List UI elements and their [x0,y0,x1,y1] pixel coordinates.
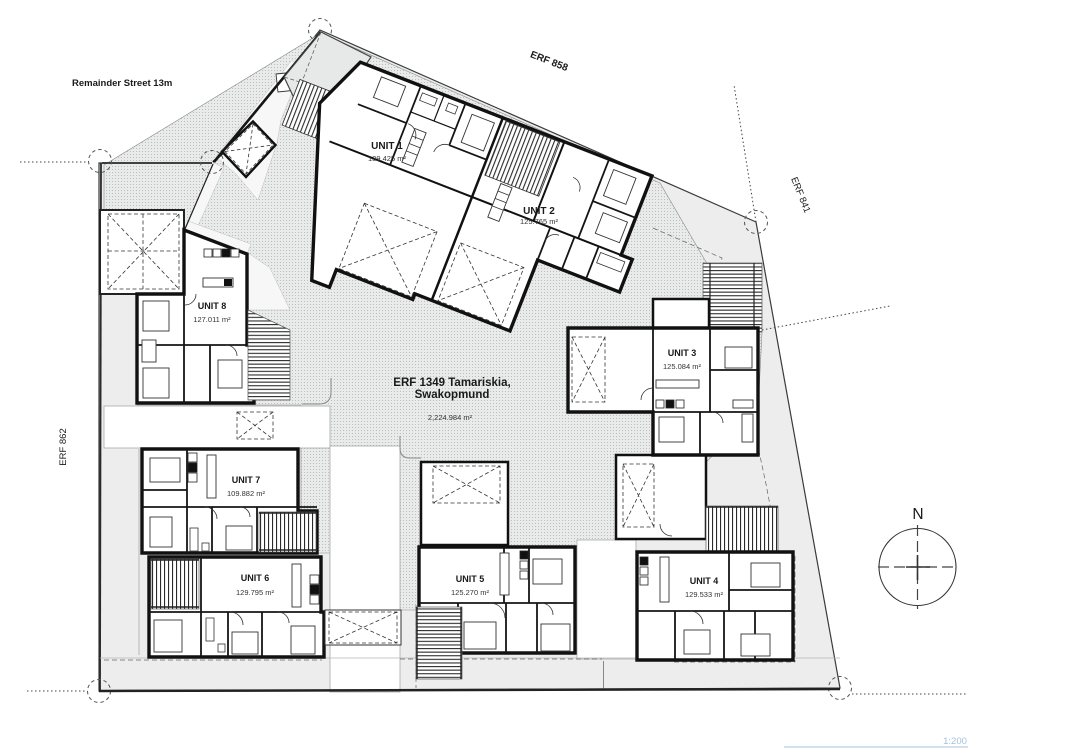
svg-text:1:200: 1:200 [943,736,967,747]
svg-text:N: N [912,506,923,523]
svg-text:UNIT 2: UNIT 2 [523,206,555,217]
svg-text:129.795 m²: 129.795 m² [236,588,274,597]
svg-text:UNIT 4: UNIT 4 [690,576,719,586]
svg-text:2,224.984 m²: 2,224.984 m² [428,413,473,422]
svg-text:127.011 m²: 127.011 m² [193,315,231,324]
svg-text:ERF 1349 Tamariskia,: ERF 1349 Tamariskia, [393,377,510,389]
svg-text:UNIT 6: UNIT 6 [241,573,270,583]
svg-text:139.425 m²: 139.425 m² [368,154,406,163]
svg-text:UNIT 8: UNIT 8 [198,301,227,311]
svg-text:UNIT 7: UNIT 7 [232,475,261,485]
svg-text:UNIT 1: UNIT 1 [371,141,403,152]
svg-text:Remainder Street 13m: Remainder Street 13m [72,78,172,89]
svg-text:Swakopmund: Swakopmund [415,389,490,401]
svg-text:125.270 m²: 125.270 m² [451,588,489,597]
svg-text:125.084 m²: 125.084 m² [663,362,701,371]
svg-text:UNIT 3: UNIT 3 [668,348,697,358]
svg-text:125.765 m²: 125.765 m² [520,217,558,226]
svg-text:ERF 862: ERF 862 [58,428,69,466]
svg-text:UNIT 5: UNIT 5 [456,574,485,584]
svg-text:129.533 m²: 129.533 m² [685,590,723,599]
svg-text:109.882 m²: 109.882 m² [227,489,265,498]
